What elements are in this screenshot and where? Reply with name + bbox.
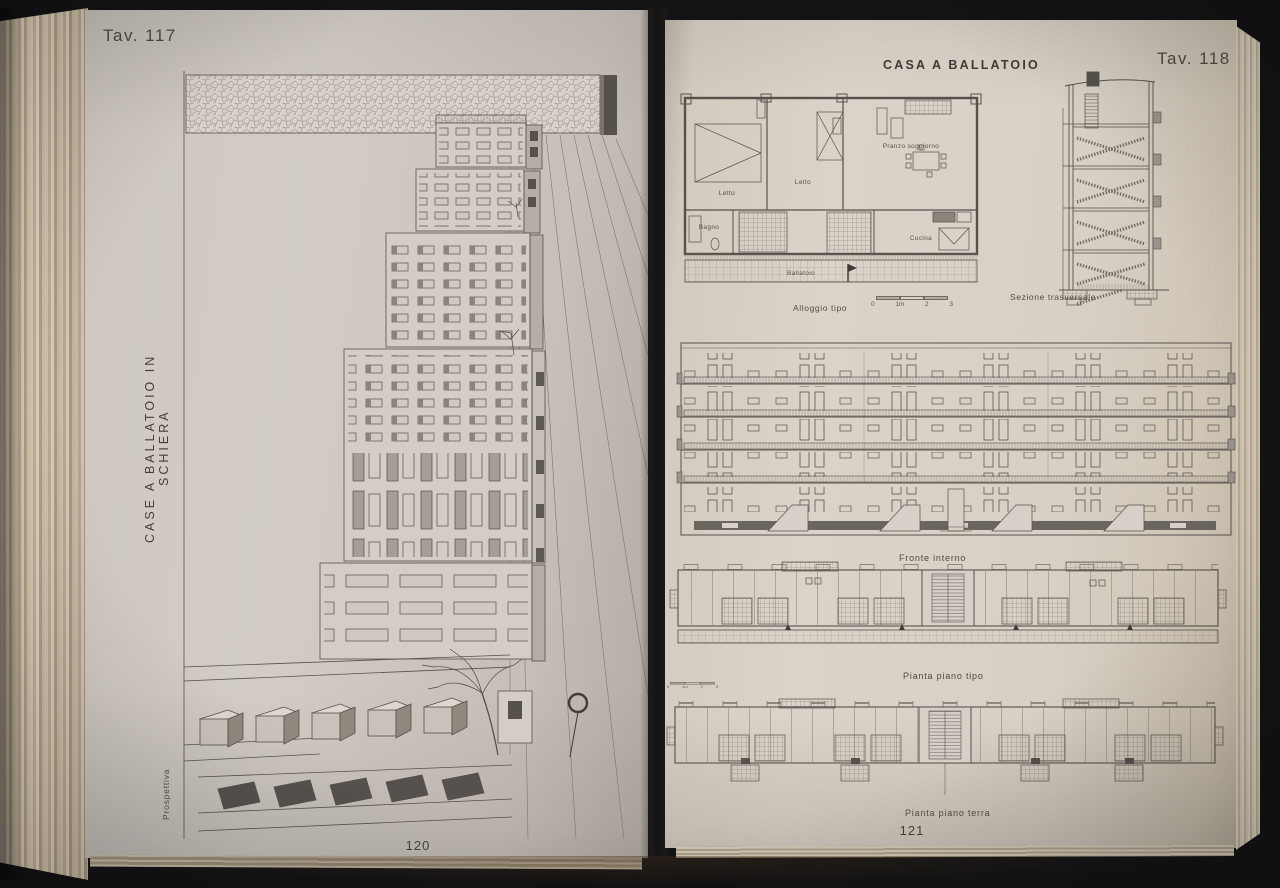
scale-label: 1m	[682, 685, 688, 689]
perspective-caption: Prospettiva	[161, 760, 175, 828]
roof-ladder	[1085, 94, 1098, 128]
page-stack-right-edge[interactable]	[1236, 26, 1260, 850]
apartment-plan-caption: Alloggio tipo	[793, 303, 847, 313]
central-stairwell	[919, 707, 971, 795]
facade-teeth	[675, 701, 1215, 707]
room-label-letto-1: Letto	[719, 190, 735, 197]
scale-bar-segments	[670, 682, 715, 684]
stair-flights	[1077, 138, 1145, 304]
ground-plan-caption: Pianta piano terra	[905, 808, 990, 818]
page-stack-left-shading	[0, 8, 88, 880]
scale-label: 3	[716, 685, 718, 689]
building-blocks	[320, 115, 545, 661]
wall-tick-strip	[685, 254, 977, 259]
room-label-bagno: Bagno	[699, 224, 720, 231]
room-label-letto-2: Letto	[795, 179, 811, 186]
scale-label: 3	[949, 301, 953, 308]
right-page[interactable]: CASA A BALLATOIO Tav. 118	[665, 20, 1237, 848]
room-label-cucina: Cucina	[910, 235, 932, 242]
street-level-structures	[184, 655, 532, 831]
scale-label: 0	[667, 685, 669, 689]
plate-number-right: Tav. 118	[1157, 49, 1231, 69]
scale-label: 2	[925, 301, 929, 308]
book-shadow	[70, 856, 1200, 886]
scale-label: 1m	[895, 301, 904, 308]
ground-floor-plan-drawing	[665, 697, 1231, 797]
scale-label: 0	[871, 301, 875, 308]
left-plate-title: CASE A BALLATOIO IN SCHIERA	[143, 328, 163, 568]
central-stairwell	[922, 570, 974, 626]
scale-bar-labels: 0 1m 2 3	[871, 301, 953, 308]
boundary-wall-openings	[198, 765, 512, 831]
typical-plan-caption: Pianta piano tipo	[903, 671, 984, 681]
gallery-band	[678, 630, 1218, 643]
pavement-mosaic-band	[186, 75, 617, 135]
typical-floor-plan-drawing	[670, 558, 1232, 656]
right-plate-title: CASA A BALLATOIO	[883, 58, 1040, 72]
section-balcony-tabs	[1153, 112, 1161, 249]
apartment-plan-drawing: Letto Letto Pranzo soggiorno Bagno Cucin…	[681, 92, 981, 292]
perspective-drawing	[180, 55, 650, 845]
room-label-ballatoio: Ballatoio	[787, 270, 815, 277]
scale-bar-apartment: 0 1m 2 3	[871, 296, 955, 308]
scale-bar-labels: 0 1m 2 3	[667, 685, 718, 689]
book-photo-scene: Tav. 117 CASE A BALLATOIO IN SCHIERA Pro…	[0, 0, 1280, 888]
gallery-strip	[685, 260, 977, 282]
page-number-right: 121	[887, 823, 937, 838]
left-page[interactable]: Tav. 117 CASE A BALLATOIO IN SCHIERA Pro…	[85, 10, 648, 858]
scale-bar-plans: 0 1m 2 3	[667, 682, 719, 689]
service-hatch-1	[739, 212, 787, 252]
scale-bar-segments	[876, 296, 948, 300]
loggia-hatch	[905, 100, 951, 114]
elevation-drawing	[678, 335, 1232, 547]
section-caption: Sezione trasversale	[1010, 292, 1096, 302]
cross-section-drawing	[1063, 68, 1172, 314]
room-label-pranzo: Pranzo soggiorno	[883, 143, 940, 150]
plate-number-left: Tav. 117	[103, 26, 177, 46]
page-number-left: 120	[393, 838, 443, 853]
service-hatch-2	[827, 212, 871, 254]
street-sign-icon	[569, 694, 587, 757]
elevation-ground-floor	[684, 487, 1228, 531]
scale-label: 2	[700, 685, 702, 689]
shed-row	[200, 698, 467, 747]
facade-teeth	[678, 564, 1218, 570]
elevation-floors	[681, 353, 1231, 483]
